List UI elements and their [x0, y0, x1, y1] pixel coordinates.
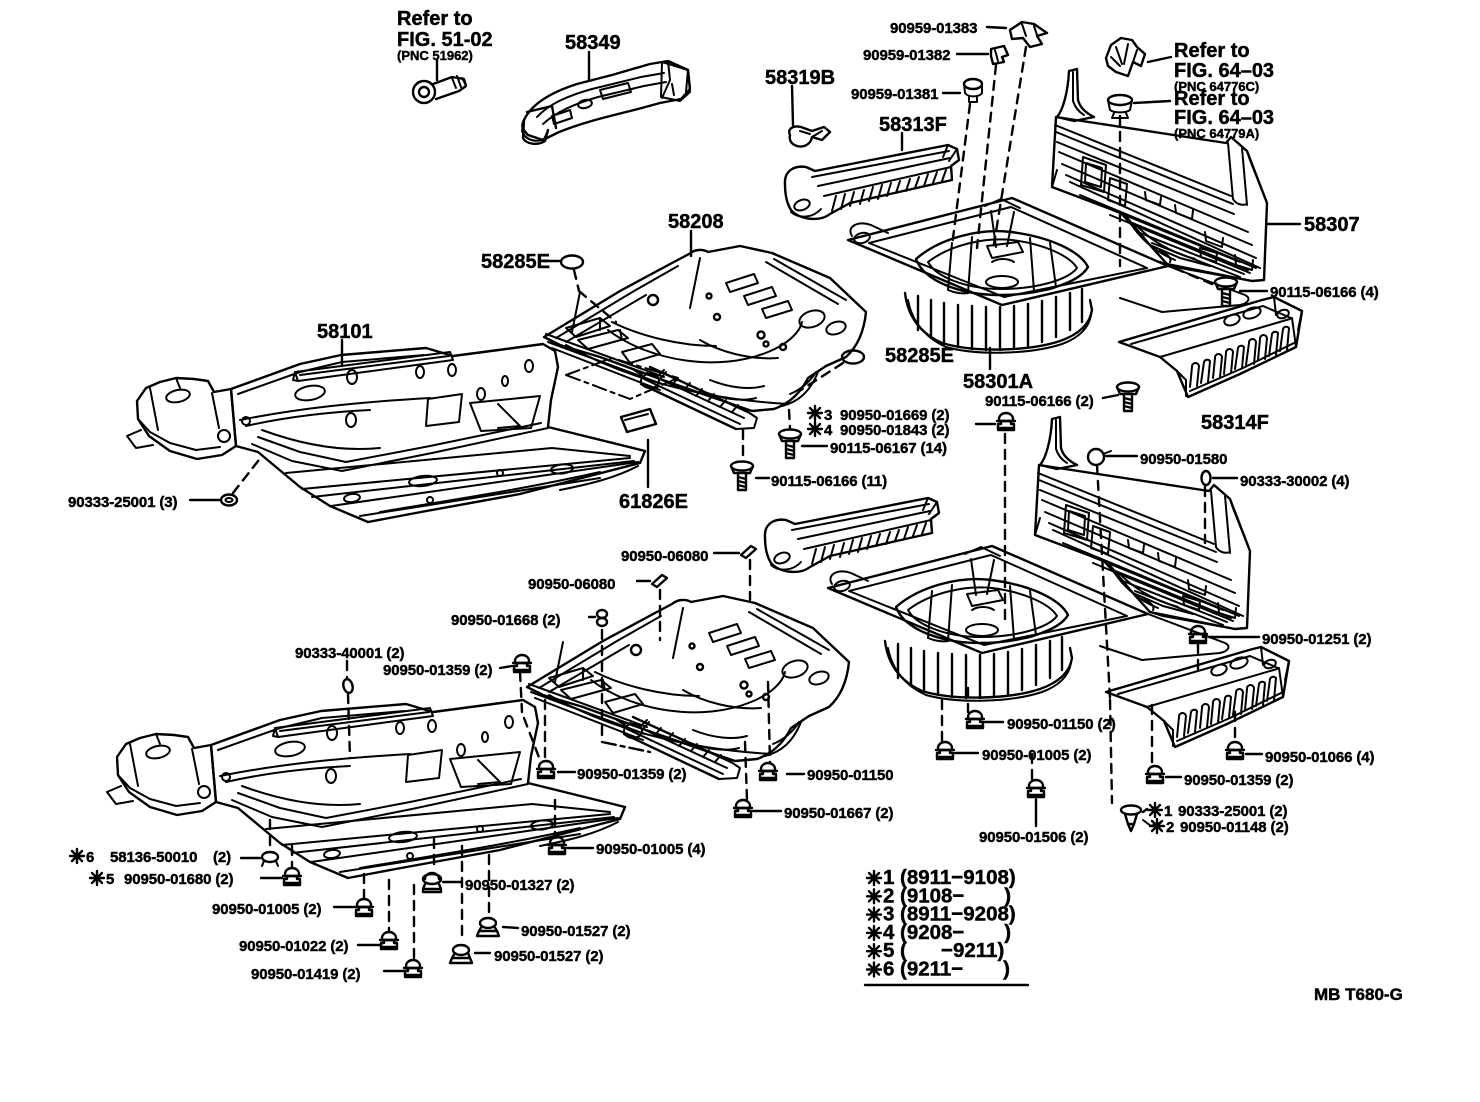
svg-text:90950-01150 (2): 90950-01150 (2) — [1007, 716, 1116, 733]
svg-text:58314F: 58314F — [1201, 412, 1269, 434]
svg-text:90950-01148 (2): 90950-01148 (2) — [1180, 819, 1289, 836]
svg-text:90950-01066 (4): 90950-01066 (4) — [1265, 749, 1375, 766]
svg-text:90333-25001 (2): 90333-25001 (2) — [1178, 803, 1288, 820]
svg-text:58136-50010: 58136-50010 — [110, 849, 197, 866]
svg-text:(2): (2) — [213, 849, 231, 866]
svg-text:61826E: 61826E — [619, 491, 688, 513]
svg-text:90115-06166 (4): 90115-06166 (4) — [1270, 284, 1379, 301]
svg-text:90950-01005 (2): 90950-01005 (2) — [982, 747, 1092, 764]
svg-text:90115-06166 (2): 90115-06166 (2) — [985, 393, 1094, 410]
svg-text:90950-01359 (2): 90950-01359 (2) — [577, 766, 687, 783]
svg-text:58208: 58208 — [668, 211, 724, 233]
svg-text:90333-30002 (4): 90333-30002 (4) — [1240, 473, 1350, 490]
svg-text:90950-01680 (2): 90950-01680 (2) — [124, 871, 234, 888]
svg-text:(PNC 51962): (PNC 51962) — [397, 48, 473, 63]
svg-text:90950-01668 (2): 90950-01668 (2) — [451, 612, 561, 629]
svg-text:90333-40001 (2): 90333-40001 (2) — [295, 645, 405, 662]
svg-text:6: 6 — [86, 849, 94, 866]
svg-text:58101: 58101 — [317, 321, 373, 343]
svg-text:90950-01327 (2): 90950-01327 (2) — [465, 877, 575, 894]
svg-text:90950-01527 (2): 90950-01527 (2) — [494, 948, 604, 965]
svg-text:90959-01383: 90959-01383 — [890, 20, 977, 37]
svg-text:90950-01419 (2): 90950-01419 (2) — [251, 966, 361, 983]
svg-text:(9211− ): (9211− ) — [900, 958, 1010, 981]
svg-text:(PNC 64779A): (PNC 64779A) — [1174, 126, 1259, 141]
svg-text:90950-01359 (2): 90950-01359 (2) — [383, 662, 493, 679]
svg-text:2: 2 — [1166, 819, 1174, 836]
svg-text:90950-01251 (2): 90950-01251 (2) — [1262, 631, 1372, 648]
svg-text:90959-01382: 90959-01382 — [863, 47, 950, 64]
svg-text:90950-06080: 90950-06080 — [621, 548, 708, 565]
svg-text:90115-06167 (14): 90115-06167 (14) — [830, 440, 947, 457]
svg-text:58285E: 58285E — [481, 251, 550, 273]
svg-text:90950-01005 (2): 90950-01005 (2) — [212, 901, 322, 918]
svg-text:58285E: 58285E — [885, 345, 954, 367]
svg-text:90950-01005 (4): 90950-01005 (4) — [596, 841, 706, 858]
svg-text:90950-01580: 90950-01580 — [1140, 451, 1227, 468]
svg-text:90333-25001 (3): 90333-25001 (3) — [68, 494, 178, 511]
svg-text:58307: 58307 — [1304, 214, 1360, 236]
svg-text:90950-01527 (2): 90950-01527 (2) — [521, 923, 631, 940]
svg-text:Refer to: Refer to — [1174, 40, 1250, 62]
svg-text:90950-06080: 90950-06080 — [528, 576, 615, 593]
svg-text:6: 6 — [883, 958, 894, 981]
svg-text:MB T680-G: MB T680-G — [1314, 985, 1403, 1004]
svg-text:90950-01150: 90950-01150 — [807, 767, 894, 784]
svg-text:90950-01506 (2): 90950-01506 (2) — [979, 829, 1089, 846]
svg-text:90959-01381: 90959-01381 — [851, 86, 938, 103]
svg-text:58349: 58349 — [565, 32, 621, 54]
svg-text:1: 1 — [1164, 803, 1172, 820]
svg-text:58301A: 58301A — [963, 371, 1033, 393]
svg-text:Refer to: Refer to — [397, 8, 473, 30]
svg-text:90950-01667 (2): 90950-01667 (2) — [784, 805, 894, 822]
svg-text:90950-01022 (2): 90950-01022 (2) — [239, 938, 349, 955]
svg-text:90950-01359 (2): 90950-01359 (2) — [1184, 772, 1294, 789]
svg-text:90950-01843 (2): 90950-01843 (2) — [840, 422, 950, 439]
svg-text:90115-06166 (11): 90115-06166 (11) — [771, 473, 887, 490]
svg-text:58313F: 58313F — [879, 114, 947, 136]
svg-text:4: 4 — [824, 422, 833, 439]
svg-text:58319B: 58319B — [765, 67, 835, 89]
svg-text:5: 5 — [106, 871, 114, 888]
